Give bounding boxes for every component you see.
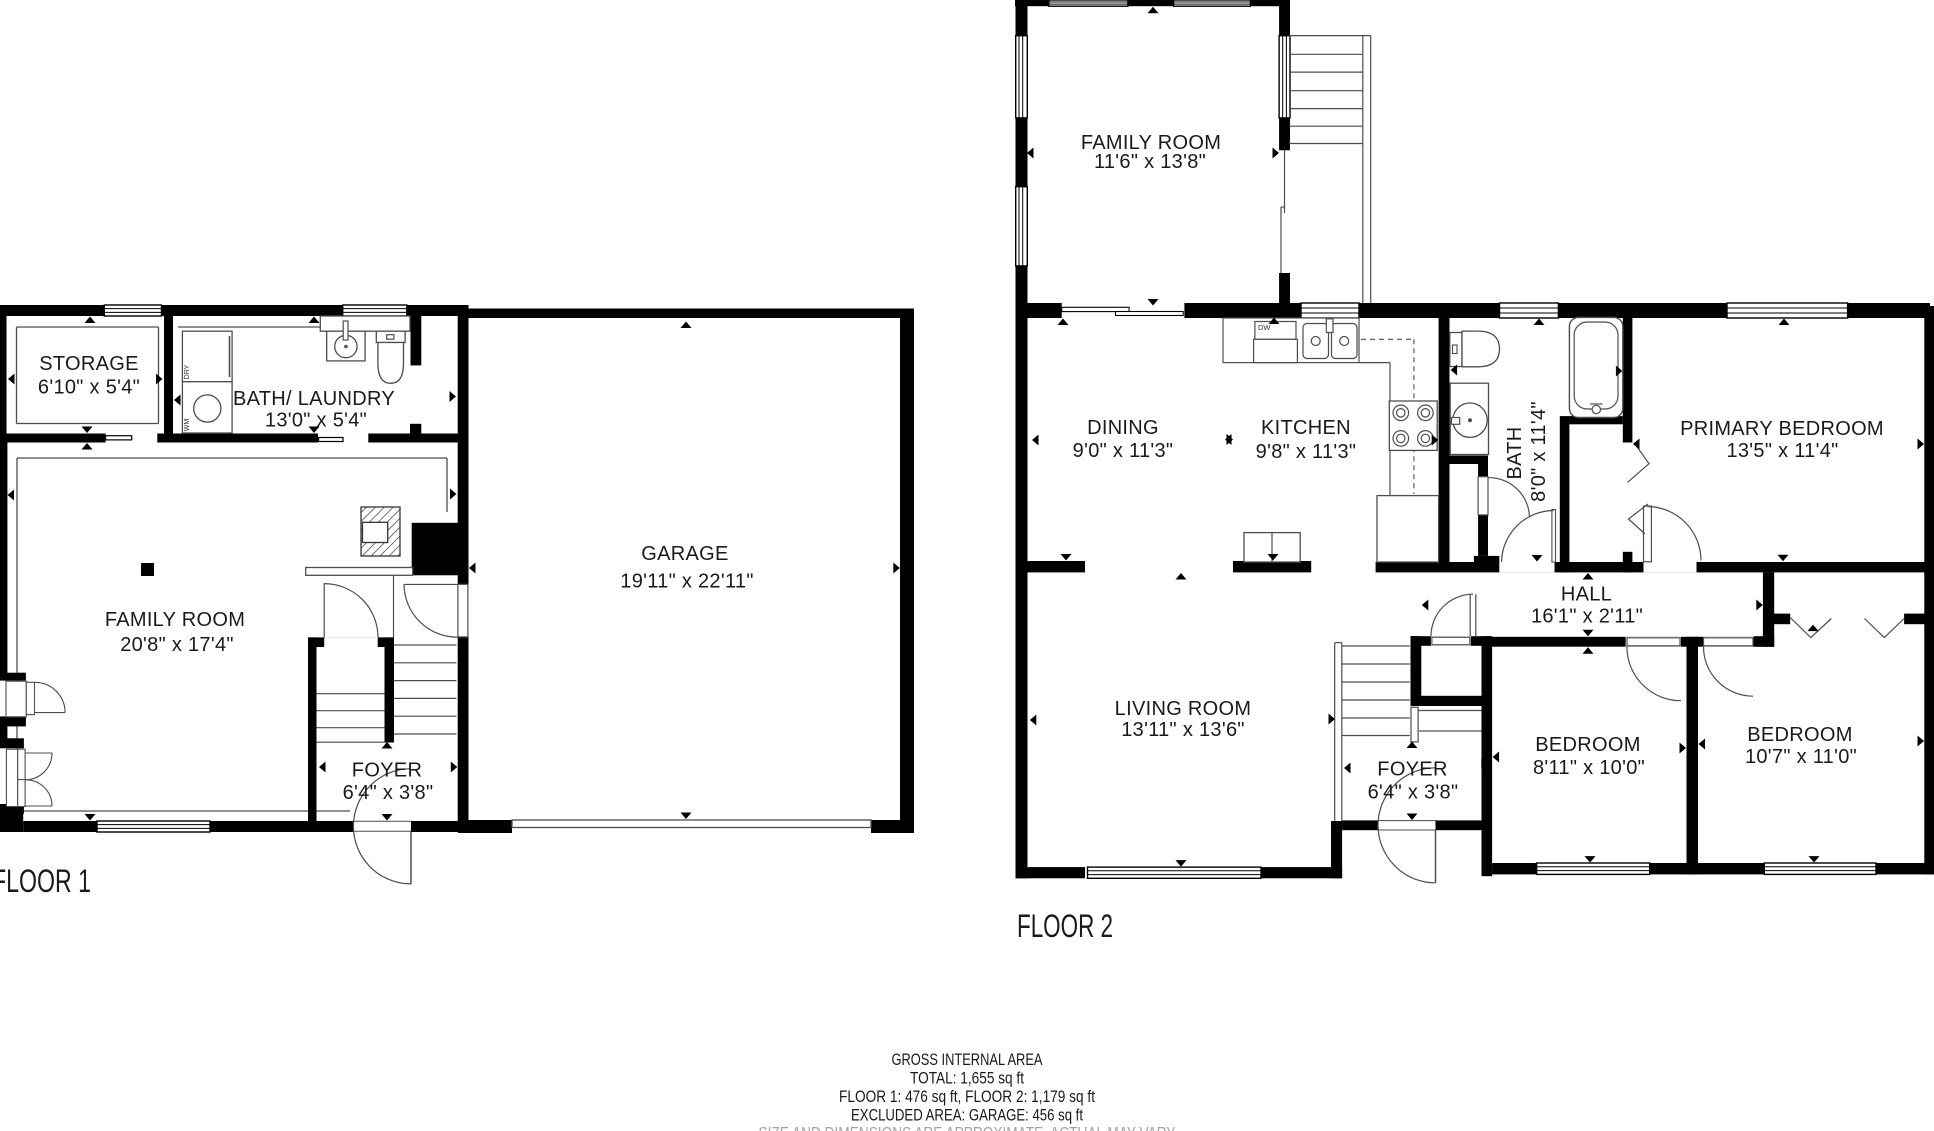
svg-text:FLOOR 1: FLOOR 1	[0, 863, 91, 899]
svg-text:BEDROOM: BEDROOM	[1747, 724, 1852, 746]
svg-text:KITCHEN: KITCHEN	[1261, 417, 1351, 439]
svg-text:9'0" x 11'3": 9'0" x 11'3"	[1073, 440, 1174, 462]
svg-text:FOYER: FOYER	[1377, 759, 1447, 781]
svg-text:PRIMARY BEDROOM: PRIMARY BEDROOM	[1680, 418, 1884, 440]
svg-text:8'11" x 10'0": 8'11" x 10'0"	[1533, 757, 1645, 779]
svg-text:20'8" x 17'4": 20'8" x 17'4"	[120, 634, 234, 656]
svg-text:6'4" x 3'8": 6'4" x 3'8"	[1368, 782, 1459, 804]
svg-text:10'7" x 11'0": 10'7" x 11'0"	[1745, 746, 1857, 768]
svg-text:9'8" x 11'3": 9'8" x 11'3"	[1256, 441, 1357, 463]
svg-text:HALL: HALL	[1561, 584, 1612, 606]
svg-text:11'6" x 13'8": 11'6" x 13'8"	[1094, 151, 1206, 173]
svg-text:FLOOR 2: FLOOR 2	[1017, 908, 1113, 944]
svg-text:TOTAL: 1,655 sq ft: TOTAL: 1,655 sq ft	[910, 1070, 1024, 1088]
svg-text:13'11" x 13'6": 13'11" x 13'6"	[1121, 719, 1245, 741]
svg-text:BATH/ LAUNDRY: BATH/ LAUNDRY	[233, 388, 395, 410]
svg-text:DRY: DRY	[184, 364, 191, 379]
svg-text:16'1" x 2'11": 16'1" x 2'11"	[1531, 606, 1643, 628]
svg-text:BEDROOM: BEDROOM	[1535, 734, 1640, 756]
svg-text:19'11" x 22'11": 19'11" x 22'11"	[620, 571, 753, 593]
svg-text:FLOOR 1: 476 sq ft, FLOOR 2: 1: FLOOR 1: 476 sq ft, FLOOR 2: 1,179 sq ft	[839, 1088, 1095, 1106]
svg-text:6'4" x 3'8": 6'4" x 3'8"	[343, 782, 434, 804]
svg-text:DW: DW	[1258, 323, 1271, 332]
svg-text:SIZE AND DIMENSIONS ARE APPROX: SIZE AND DIMENSIONS ARE APPROXIMATE, ACT…	[759, 1125, 1176, 1131]
svg-text:LIVING ROOM: LIVING ROOM	[1115, 698, 1252, 720]
svg-text:EXCLUDED AREA: GARAGE: 456 sq: EXCLUDED AREA: GARAGE: 456 sq ft	[851, 1106, 1083, 1124]
svg-text:FOYER: FOYER	[352, 760, 422, 782]
svg-text:STORAGE: STORAGE	[39, 353, 139, 375]
svg-text:13'5" x 11'4": 13'5" x 11'4"	[1726, 440, 1838, 462]
svg-text:GARAGE: GARAGE	[641, 543, 728, 565]
svg-text:BATH: BATH	[1504, 426, 1526, 479]
svg-text:DINING: DINING	[1087, 417, 1159, 439]
svg-text:FAMILY ROOM: FAMILY ROOM	[105, 609, 245, 631]
svg-text:WM: WM	[184, 419, 191, 432]
svg-text:8'0" x 11'4": 8'0" x 11'4"	[1528, 401, 1550, 502]
svg-text:GROSS INTERNAL AREA: GROSS INTERNAL AREA	[892, 1051, 1043, 1069]
svg-text:13'0" x 5'4": 13'0" x 5'4"	[265, 410, 367, 432]
svg-text:6'10" x 5'4": 6'10" x 5'4"	[38, 377, 140, 399]
